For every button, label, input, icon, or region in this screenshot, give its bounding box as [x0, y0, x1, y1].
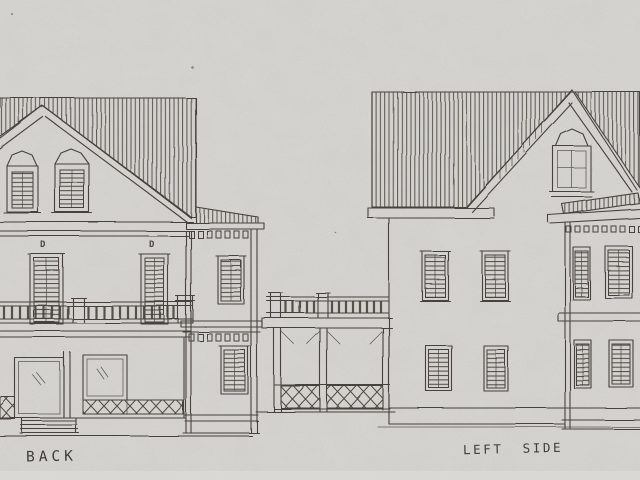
tower-upper-window: [216, 256, 246, 304]
door-mark-left: D: [40, 240, 45, 250]
wall-upper-window-2: [480, 251, 510, 301]
back-elevation-label: BACK: [26, 448, 77, 465]
left-side-elevation-label: LEFT SIDE: [463, 440, 563, 458]
back-lattice-left: [0, 397, 15, 419]
back-lattice-band: [83, 400, 183, 414]
wall-lower-window-2: [484, 346, 508, 391]
porch-lattice-left: [281, 386, 320, 408]
elevation-drawing-canvas: [0, 0, 640, 480]
porch-lattice-right: [327, 386, 383, 408]
bay-upper-window-narrow: [573, 247, 590, 300]
wall-upper-window-1: [420, 251, 450, 301]
scanned-elevation-sheet: BACK LEFT SIDE D D: [0, 0, 640, 480]
door-mark-right: D: [149, 240, 154, 250]
tower-lower-window: [219, 346, 250, 394]
bay-lower-window-narrow: [574, 340, 591, 388]
bay-upper-window-wide: [605, 246, 632, 298]
bay-lower-window-wide: [609, 340, 633, 387]
wall-lower-window-1: [426, 346, 452, 391]
